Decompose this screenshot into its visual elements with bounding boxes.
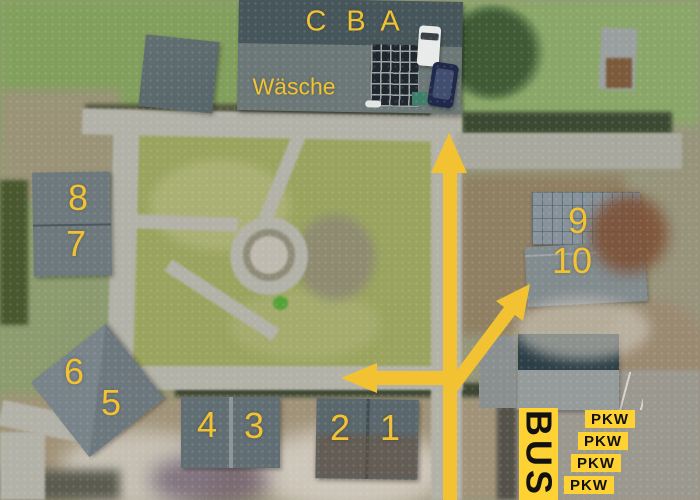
bus-parking-sign: BUS [519, 408, 558, 500]
hall-section-label-a: A [380, 6, 399, 39]
unit-label-9: 9 [568, 200, 588, 242]
unit-label-7: 7 [66, 223, 86, 265]
pkw-parking-sign-3: PKW [571, 454, 621, 472]
brown-canopy-over-unit-10 [590, 195, 668, 273]
pkw-parking-sign-2: PKW [578, 432, 628, 450]
roof-vent-mark [365, 100, 381, 107]
green-bin [412, 92, 427, 105]
bush-lawn-2 [273, 296, 288, 310]
bare-branches-over-house [515, 298, 650, 360]
van-windshield [420, 32, 438, 40]
unit-label-1: 1 [380, 407, 400, 449]
hedge-left-of-bus-lane [497, 402, 517, 500]
hall-section-label-b: B [346, 6, 365, 39]
unit-label-6: 6 [64, 351, 84, 393]
unit-label-2: 2 [330, 407, 350, 449]
aerial-site-map: C B A Wäsche 8 7 9 10 6 5 4 3 2 1 BUS PK… [0, 0, 700, 500]
unit-label-4: 4 [197, 404, 217, 446]
cabin-4-3-divider [229, 397, 233, 468]
woodpile-brown [606, 58, 632, 88]
unit-label-10: 10 [552, 240, 592, 282]
shed-roof-top-left [138, 34, 219, 113]
hedge-right-bed-top [462, 112, 672, 134]
white-van [417, 25, 442, 66]
unit-label-5: 5 [101, 382, 121, 424]
unit-label-3: 3 [244, 405, 264, 447]
annex-roof-bottom-right [479, 336, 517, 408]
hedge-left-edge [0, 180, 28, 325]
unit-label-8: 8 [68, 177, 88, 219]
van-roof-stripe [432, 68, 454, 100]
pkw-parking-sign-1: PKW [585, 410, 635, 428]
hall-section-label-c: C [306, 6, 327, 39]
laundry-label: Wäsche [252, 74, 335, 101]
path-left-margin [0, 432, 45, 500]
cabin-roof-units-4-3 [181, 397, 280, 468]
long-roof-top-right [456, 133, 682, 169]
pkw-parking-sign-4: PKW [564, 476, 614, 494]
bus-parking-sign-label: BUS [521, 410, 557, 498]
roundabout-mound [250, 236, 288, 274]
